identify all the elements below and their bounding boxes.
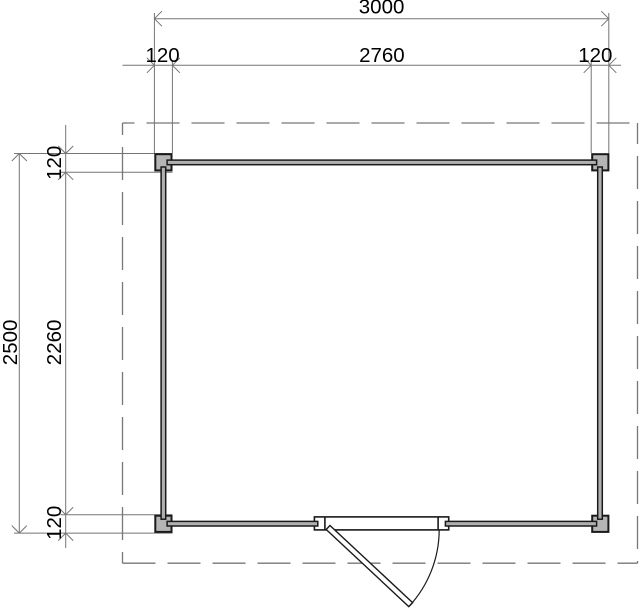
svg-text:2500: 2500 — [0, 320, 22, 366]
svg-text:120: 120 — [43, 506, 66, 540]
svg-text:120: 120 — [578, 44, 612, 67]
svg-text:120: 120 — [43, 146, 66, 180]
svg-text:120: 120 — [145, 44, 179, 67]
svg-text:2760: 2760 — [359, 44, 405, 67]
svg-text:2260: 2260 — [43, 320, 66, 366]
svg-text:3000: 3000 — [359, 0, 405, 19]
